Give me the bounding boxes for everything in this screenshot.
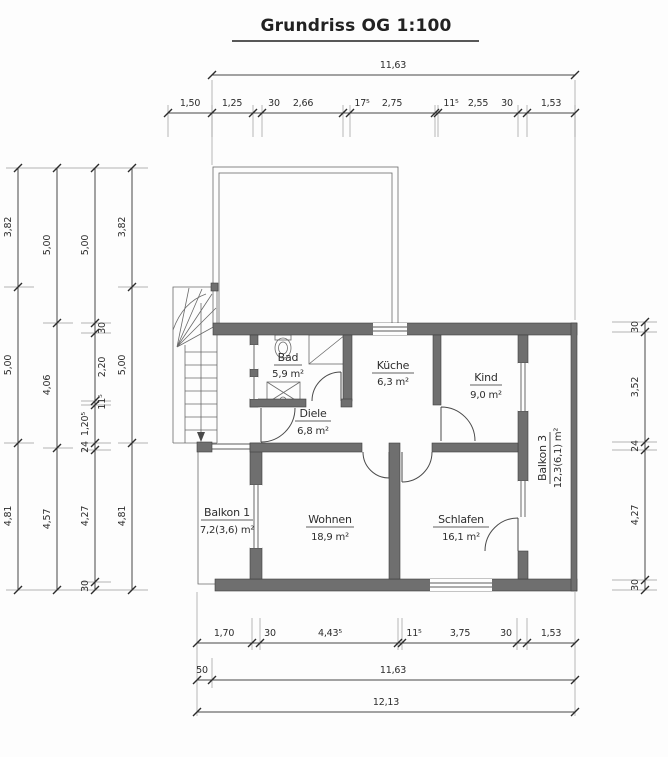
dim-label: 3,52 — [630, 377, 641, 398]
dim-label: 50 — [196, 665, 208, 676]
dim-label: 3,82 — [117, 217, 128, 238]
dim-label: 24 — [80, 441, 91, 453]
dim-label: 2,20 — [97, 357, 108, 378]
door-arc-kind — [441, 407, 475, 441]
dim-label: 2,75 — [382, 98, 403, 109]
dim-label: 1,53 — [541, 98, 562, 109]
room-label-balkon3: Balkon 3 — [536, 435, 549, 481]
dim-label: 4,06 — [42, 375, 53, 396]
door-arc-schlafen — [402, 452, 432, 482]
door-arc-bad — [312, 372, 341, 401]
dim-label: 4,27 — [630, 505, 641, 526]
terrace-outer — [213, 167, 398, 327]
window-schlafen-right — [518, 481, 528, 517]
staircase — [173, 287, 217, 443]
wall-bad-right — [343, 335, 352, 401]
wall-kueche-kind — [433, 335, 441, 405]
door-arc-diele — [261, 408, 295, 442]
room-label-schlafen: Schlafen — [438, 513, 484, 526]
window-schlafen-bottom — [430, 579, 492, 591]
page-title: Grundriss OG 1:100 — [260, 16, 451, 36]
wall-bad-bottom-corner — [341, 399, 352, 407]
room-area-balkon3: 12,3(6,1) m² — [553, 428, 564, 489]
wall-schlafen-balkon3 — [518, 551, 528, 579]
room-label-bad: Bad — [278, 351, 299, 364]
wall-kind-balkon3-b — [518, 411, 528, 481]
dim-label: 2,66 — [293, 98, 314, 109]
dim-label: 30 — [264, 628, 276, 639]
terrace-inner — [219, 173, 392, 327]
window-kind-right — [518, 363, 528, 411]
dim-label: 4,57 — [42, 509, 53, 530]
dim-label: 11,63 — [380, 60, 406, 71]
floor-plan-page: Grundriss OG 1:100 — [0, 0, 668, 757]
dim-guides-top-row — [168, 105, 575, 137]
dim-label: 30 — [80, 580, 91, 592]
wall-bad-left-a — [250, 335, 258, 345]
dim-bottom: 1,70 30 4,43⁵ 11⁵ 3,75 30 1,53 50 11,63 … — [193, 592, 579, 716]
wall-bad-bottom — [250, 399, 306, 407]
wall-bad-left-b — [250, 369, 258, 377]
dim-label: 17⁵ — [354, 98, 370, 109]
dim-left: 3,82 5,00 4,81 5,00 4,06 4,57 5,00 30 2,… — [3, 164, 148, 594]
stair-direction-arrow — [197, 432, 205, 442]
dim-label: 4,81 — [117, 506, 128, 527]
dim-guides-right — [612, 322, 657, 590]
dim-label: 11⁵ — [97, 394, 108, 410]
wall-wohnen-schlafen — [389, 443, 400, 579]
dim-label: 1,25 — [222, 98, 243, 109]
dim-label: 30 — [97, 322, 108, 334]
window-balkon1-wohnen — [250, 485, 262, 548]
dim-label: 1,50 — [180, 98, 201, 109]
wall-exterior-bottom — [215, 579, 577, 591]
drawing-title: Grundriss OG 1:100 — [232, 16, 479, 41]
room-label-wohnen: Wohnen — [308, 513, 352, 526]
dim-top: 11,63 1,50 1,25 30 2,66 17⁵ 2,75 11⁵ 2,5… — [164, 60, 579, 320]
post-balkon1 — [197, 442, 212, 452]
wall-mid-right — [432, 443, 518, 452]
dim-label: 5,00 — [80, 235, 91, 256]
dim-label: 30 — [268, 98, 280, 109]
door-arc-wohnen — [363, 452, 389, 478]
dim-label: 24 — [630, 440, 641, 452]
wall-mid-left — [250, 443, 362, 452]
dim-extension-lines-top — [212, 80, 575, 320]
dim-right: 30 3,52 24 4,27 30 — [612, 318, 657, 594]
dim-label: 4,81 — [3, 506, 14, 527]
terrace-outline — [213, 167, 398, 327]
dim-label: 1,70 — [214, 628, 235, 639]
dim-label: 30 — [500, 628, 512, 639]
dim-label: 5,00 — [42, 235, 53, 256]
wall-balkon3-parapet — [571, 323, 577, 591]
dim-label: 30 — [630, 321, 641, 333]
room-area-kueche: 6,3 m² — [377, 377, 409, 388]
room-area-diele: 6,8 m² — [297, 426, 329, 437]
room-label-diele: Diele — [299, 407, 327, 420]
stair-winder-treads — [177, 288, 217, 347]
dim-label: 1,53 — [541, 628, 562, 639]
dim-guides-bottom-row1 — [252, 618, 527, 650]
dim-label: 11⁵ — [443, 98, 459, 109]
dim-label: 3,75 — [450, 628, 471, 639]
room-area-kind: 9,0 m² — [470, 390, 502, 401]
window-kueche-top — [373, 323, 407, 335]
shower-diagonal — [309, 335, 345, 364]
dim-label: 4,27 — [80, 506, 91, 527]
dim-label: 3,82 — [3, 217, 14, 238]
toilet-tank-symbol — [275, 335, 291, 340]
dim-label: 30 — [501, 98, 513, 109]
dim-label: 11,63 — [380, 665, 406, 676]
post-terrace-stair — [211, 283, 218, 291]
dim-label: 12,13 — [373, 697, 399, 708]
room-label-balkon1: Balkon 1 — [204, 506, 250, 519]
dim-label: 2,55 — [468, 98, 489, 109]
room-area-balkon1: 7,2(3,6) m² — [200, 525, 255, 536]
wall-kind-balkon3-a — [518, 335, 528, 363]
room-area-wohnen: 18,9 m² — [311, 532, 349, 543]
dim-label: 11⁵ — [406, 628, 422, 639]
dim-label: 1,20⁵ — [80, 412, 91, 436]
floor-plan-svg: Grundriss OG 1:100 — [0, 0, 668, 757]
room-area-schlafen: 16,1 m² — [442, 532, 480, 543]
door-arc-balkon3 — [485, 518, 518, 551]
wall-balkon1-wohnen-b — [250, 548, 262, 579]
dim-label: 5,00 — [3, 355, 14, 376]
room-label-kueche: Küche — [377, 359, 410, 372]
dim-label: 30 — [630, 579, 641, 591]
balkon1-railing — [212, 444, 252, 449]
dim-label: 4,43⁵ — [318, 628, 342, 639]
room-area-bad: 5,9 m² — [272, 369, 304, 380]
room-label-kind: Kind — [474, 371, 497, 384]
dim-label: 5,00 — [117, 355, 128, 376]
